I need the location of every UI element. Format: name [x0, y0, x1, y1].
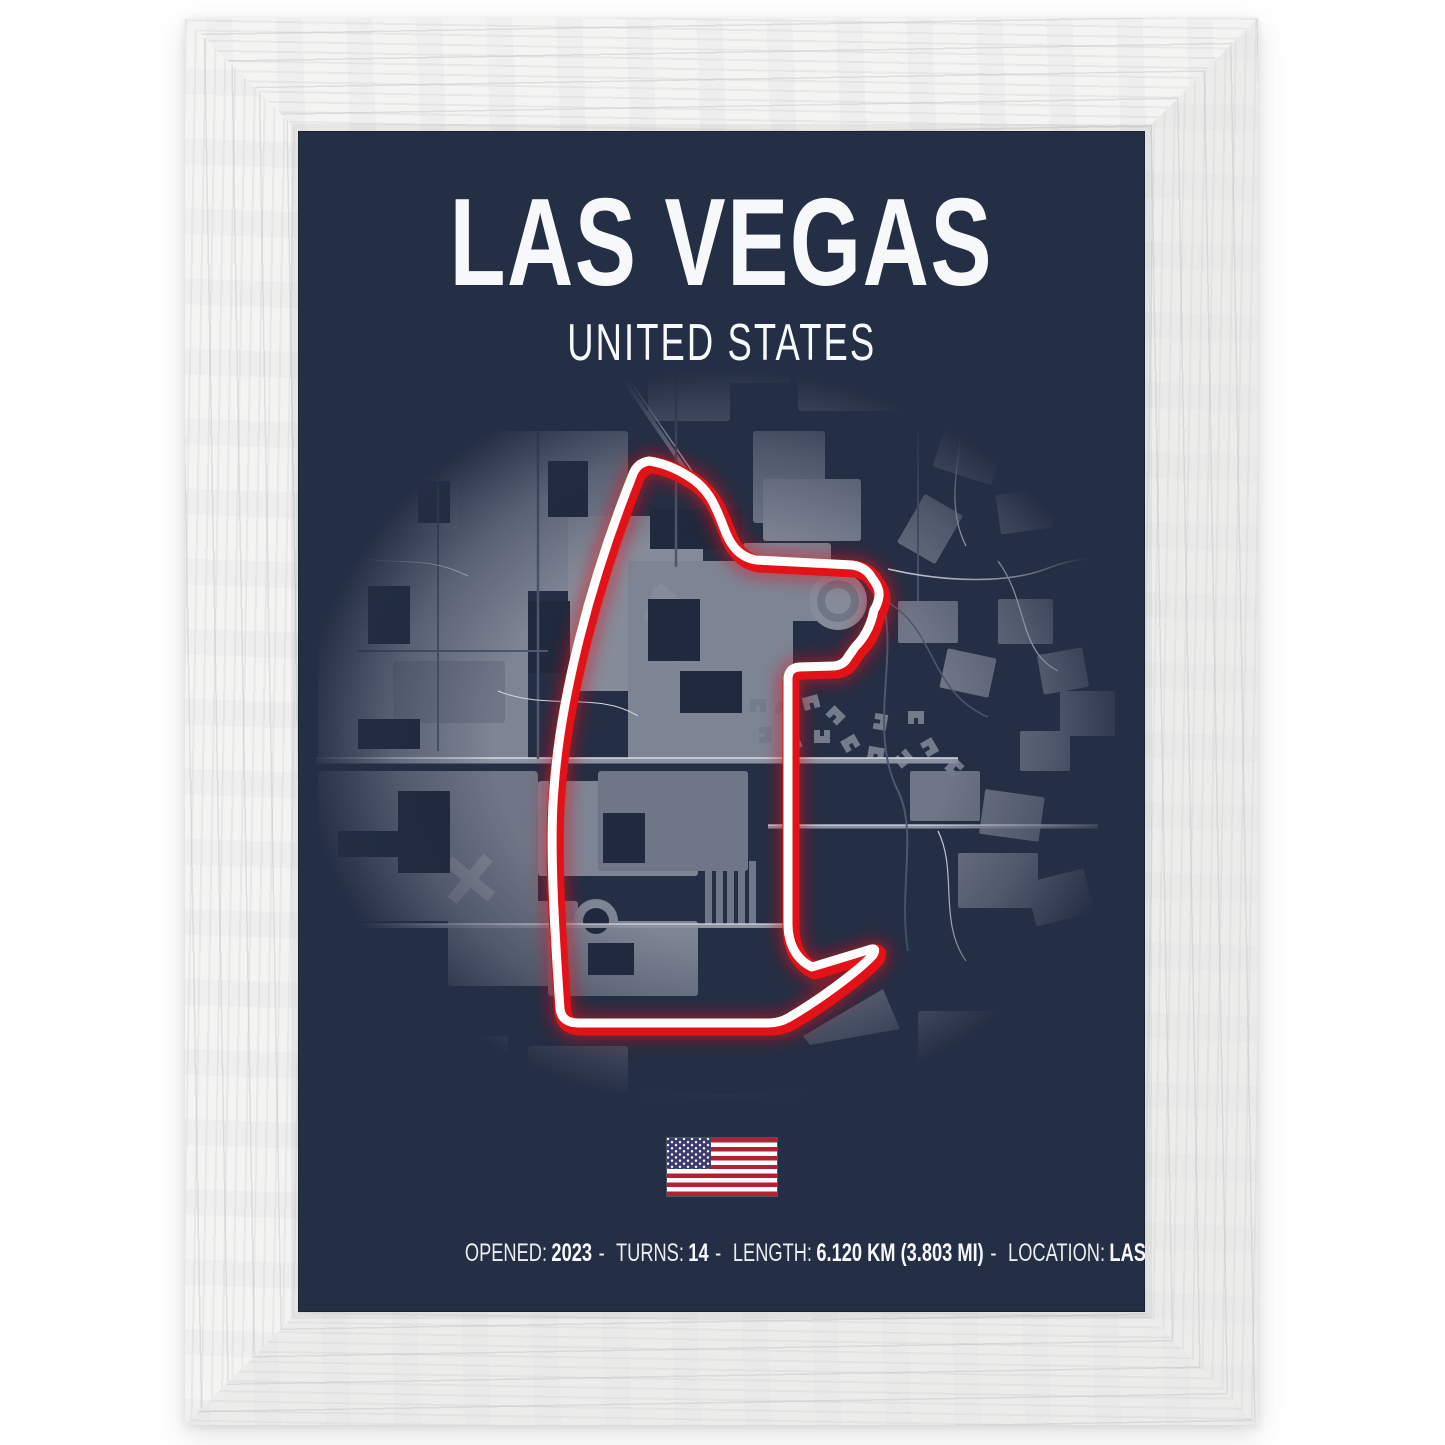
- white-wood-frame: LAS VEGAS UNITED STATES OPENED:2023- TUR…: [185, 18, 1258, 1425]
- title-block: LAS VEGAS UNITED STATES: [298, 181, 1145, 369]
- stat-value: 2023: [551, 1239, 592, 1267]
- stat-label: TURNS:: [616, 1239, 684, 1267]
- poster-subtitle-text: UNITED STATES: [567, 317, 876, 369]
- stats-line: OPENED:2023- TURNS:14- LENGTH:6.120 KM (…: [298, 1238, 1145, 1268]
- poster: LAS VEGAS UNITED STATES OPENED:2023- TUR…: [298, 131, 1145, 1312]
- stat-value: 6.120 KM (3.803 MI): [816, 1239, 983, 1267]
- poster-title: LAS VEGAS: [450, 181, 994, 305]
- page-background: { "poster": { "title": "LAS VEGAS", "sub…: [0, 0, 1445, 1445]
- stat-label: OPENED:: [465, 1239, 547, 1267]
- stat-label: LENGTH:: [733, 1239, 812, 1267]
- flag-canton: [667, 1138, 711, 1169]
- stat-separator: -: [715, 1239, 721, 1267]
- stat-separator: -: [599, 1239, 605, 1267]
- poster-subtitle: UNITED STATES: [298, 317, 1145, 369]
- stat-separator: -: [990, 1239, 996, 1267]
- stat-value: 14: [688, 1239, 708, 1267]
- stat-value: LAS VEGAS, UNITED STATES: [1109, 1239, 1145, 1267]
- stat-label: LOCATION:: [1008, 1239, 1105, 1267]
- us-flag-icon: [667, 1138, 777, 1196]
